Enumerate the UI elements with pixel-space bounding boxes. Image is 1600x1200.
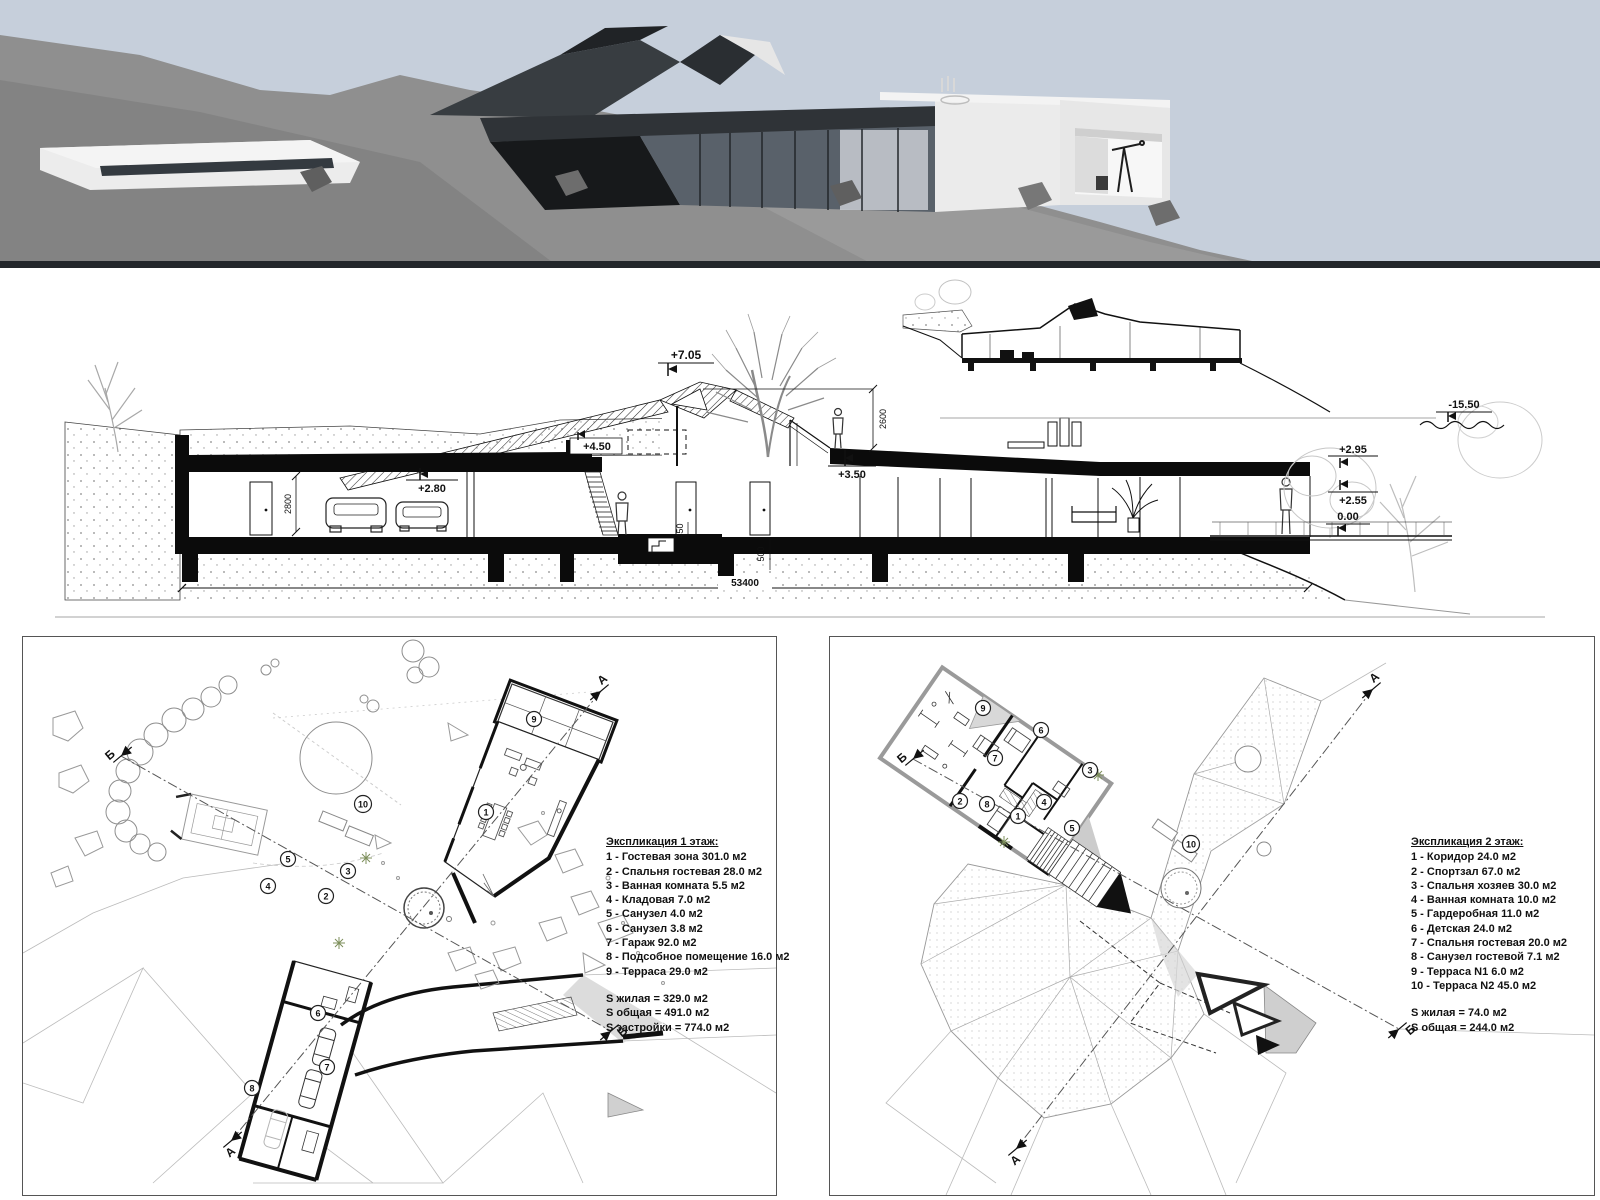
legend1-title: Экспликация 1 этаж: <box>606 835 790 849</box>
svg-text:+2.95: +2.95 <box>1339 444 1367 456</box>
section-marker-b-left: Б <box>102 736 135 768</box>
svg-text:1: 1 <box>483 808 488 818</box>
legend-line: 4 - Ванная комната 10.0 м2 <box>1411 893 1567 907</box>
svg-text:5: 5 <box>285 855 290 865</box>
svg-text:4: 4 <box>1041 798 1046 808</box>
legend-line: 6 - Детская 24.0 м2 <box>1411 922 1567 936</box>
legend-line: 10 - Терраса N2 45.0 м2 <box>1411 979 1567 993</box>
section-drawing: 53400 2800 2600 450 500 +7.05 +4.50 +2.8… <box>0 270 1600 620</box>
legend-line: 7 - Спальня гостевая 20.0 м2 <box>1411 936 1567 950</box>
legend-floor2: Экспликация 2 этаж: 1 - Коридор 24.0 м22… <box>1411 835 1567 1035</box>
svg-text:3: 3 <box>345 867 350 877</box>
legend-line: 8 - Подсобное помещение 16.0 м2 <box>606 950 790 964</box>
legend-line: S общая = 244.0 м2 <box>1411 1021 1567 1035</box>
trees <box>106 640 439 861</box>
legend-line: 3 - Спальня хозяев 30.0 м2 <box>1411 879 1567 893</box>
svg-text:9: 9 <box>980 704 985 714</box>
svg-text:+2.80: +2.80 <box>418 483 446 495</box>
elev-255: +2.55 <box>1328 480 1378 507</box>
svg-text:2: 2 <box>323 892 328 902</box>
svg-text:0.00: 0.00 <box>1337 511 1358 523</box>
small-triangle <box>608 1093 643 1117</box>
render-separator <box>0 261 1600 268</box>
legend-line: 7 - Гараж 92.0 м2 <box>606 936 790 950</box>
tree-right <box>1380 476 1448 592</box>
garage-wing <box>239 961 371 1180</box>
elev-000: 0.00 <box>1326 511 1370 536</box>
legend-line: 1 - Гостевая зона 301.0 м2 <box>606 850 790 864</box>
section-marker-a2-bottom: А <box>1004 1136 1037 1168</box>
svg-text:6: 6 <box>315 1009 320 1019</box>
legend-line: 9 - Терраса N1 6.0 м2 <box>1411 965 1567 979</box>
svg-text:+2.55: +2.55 <box>1339 495 1367 507</box>
svg-text:7: 7 <box>324 1063 329 1073</box>
svg-text:+3.50: +3.50 <box>838 469 866 481</box>
svg-text:10: 10 <box>1186 840 1196 850</box>
svg-text:2600: 2600 <box>878 409 888 429</box>
floor-plan-1-panel: А Б Б А 1 2 3 4 5 6 7 8 9 10 Экспликация… <box>22 636 777 1196</box>
svg-text:6: 6 <box>1038 726 1043 736</box>
legend-line: S жилая = 329.0 м2 <box>606 992 790 1006</box>
legend-line: 4 - Кладовая 7.0 м2 <box>606 893 790 907</box>
floor-plan-2-panel: Б А Б А 1 2 3 4 5 6 7 8 9 10 Экспликация… <box>829 636 1595 1196</box>
rocks-left <box>51 711 103 887</box>
render-3d-view <box>0 0 1600 268</box>
pool <box>404 888 452 928</box>
plant <box>1112 480 1158 532</box>
elev-295: +2.95 <box>1328 444 1378 468</box>
dim-2800: 2800 <box>283 472 300 536</box>
legend-line: 6 - Санузел 3.8 м2 <box>606 922 790 936</box>
legend-line: 2 - Спальня гостевая 28.0 м2 <box>606 865 790 879</box>
svg-text:+4.50: +4.50 <box>583 441 611 453</box>
elev-705: +7.05 <box>658 348 714 376</box>
render-canopy-and-glass <box>480 100 988 212</box>
svg-text:5: 5 <box>1069 824 1074 834</box>
svg-text:4: 4 <box>265 882 270 892</box>
svg-text:2: 2 <box>957 797 962 807</box>
render-chair <box>1096 176 1108 190</box>
sport-court <box>168 791 268 855</box>
svg-text:10: 10 <box>358 800 368 810</box>
legend1-totals: S жилая = 329.0 м2S общая = 491.0 м2S за… <box>606 992 790 1035</box>
garage-cars <box>326 498 448 532</box>
stair-section <box>585 472 618 535</box>
legend-line: S застройки = 774.0 м2 <box>606 1021 790 1035</box>
lounge-chairs <box>317 811 375 846</box>
legend-line: 1 - Коридор 24.0 м2 <box>1411 850 1567 864</box>
svg-text:500: 500 <box>756 546 766 561</box>
legend-line: S жилая = 74.0 м2 <box>1411 1006 1567 1020</box>
svg-text:-15.50: -15.50 <box>1448 399 1479 411</box>
legend-line: 3 - Ванная комната 5.5 м2 <box>606 879 790 893</box>
legend-line: 5 - Санузел 4.0 м2 <box>606 907 790 921</box>
section-marker-a2-top: А <box>1353 669 1387 702</box>
presentation-board: 53400 2800 2600 450 500 +7.05 +4.50 +2.8… <box>0 0 1600 1200</box>
legend-floor1: Экспликация 1 этаж: 1 - Гостевая зона 30… <box>606 835 790 1035</box>
svg-text:3: 3 <box>1087 766 1092 776</box>
bathtub <box>1072 506 1116 522</box>
legend2-title: Экспликация 2 этаж: <box>1411 835 1567 849</box>
svg-text:8: 8 <box>249 1084 254 1094</box>
legend-line: 9 - Терраса 29.0 м2 <box>606 965 790 979</box>
svg-text:2800: 2800 <box>283 494 293 514</box>
section-marker-a-top: А <box>581 671 615 704</box>
svg-text:8: 8 <box>984 800 989 810</box>
mini-overview-section <box>903 280 1542 478</box>
legend-line: 2 - Спортзал 67.0 м2 <box>1411 865 1567 879</box>
svg-text:9: 9 <box>531 715 536 725</box>
doors <box>250 482 770 535</box>
legend-line: 5 - Гардеробная 11.0 м2 <box>1411 907 1567 921</box>
svg-text:1: 1 <box>1015 812 1020 822</box>
svg-text:+7.05: +7.05 <box>671 348 702 362</box>
roof-objects <box>1008 418 1081 448</box>
svg-text:7: 7 <box>992 754 997 764</box>
legend2-items: 1 - Коридор 24.0 м22 - Спортзал 67.0 м23… <box>1411 850 1567 993</box>
legend-line: 8 - Санузел гостевой 7.1 м2 <box>1411 950 1567 964</box>
legend2-totals: S жилая = 74.0 м2S общая = 244.0 м2 <box>1411 1006 1567 1035</box>
svg-text:53400: 53400 <box>731 578 759 589</box>
legend1-items: 1 - Гостевая зона 301.0 м22 - Спальня го… <box>606 850 790 979</box>
big-tree <box>300 722 372 794</box>
legend-line: S общая = 491.0 м2 <box>606 1006 790 1020</box>
svg-text:450: 450 <box>675 523 685 538</box>
